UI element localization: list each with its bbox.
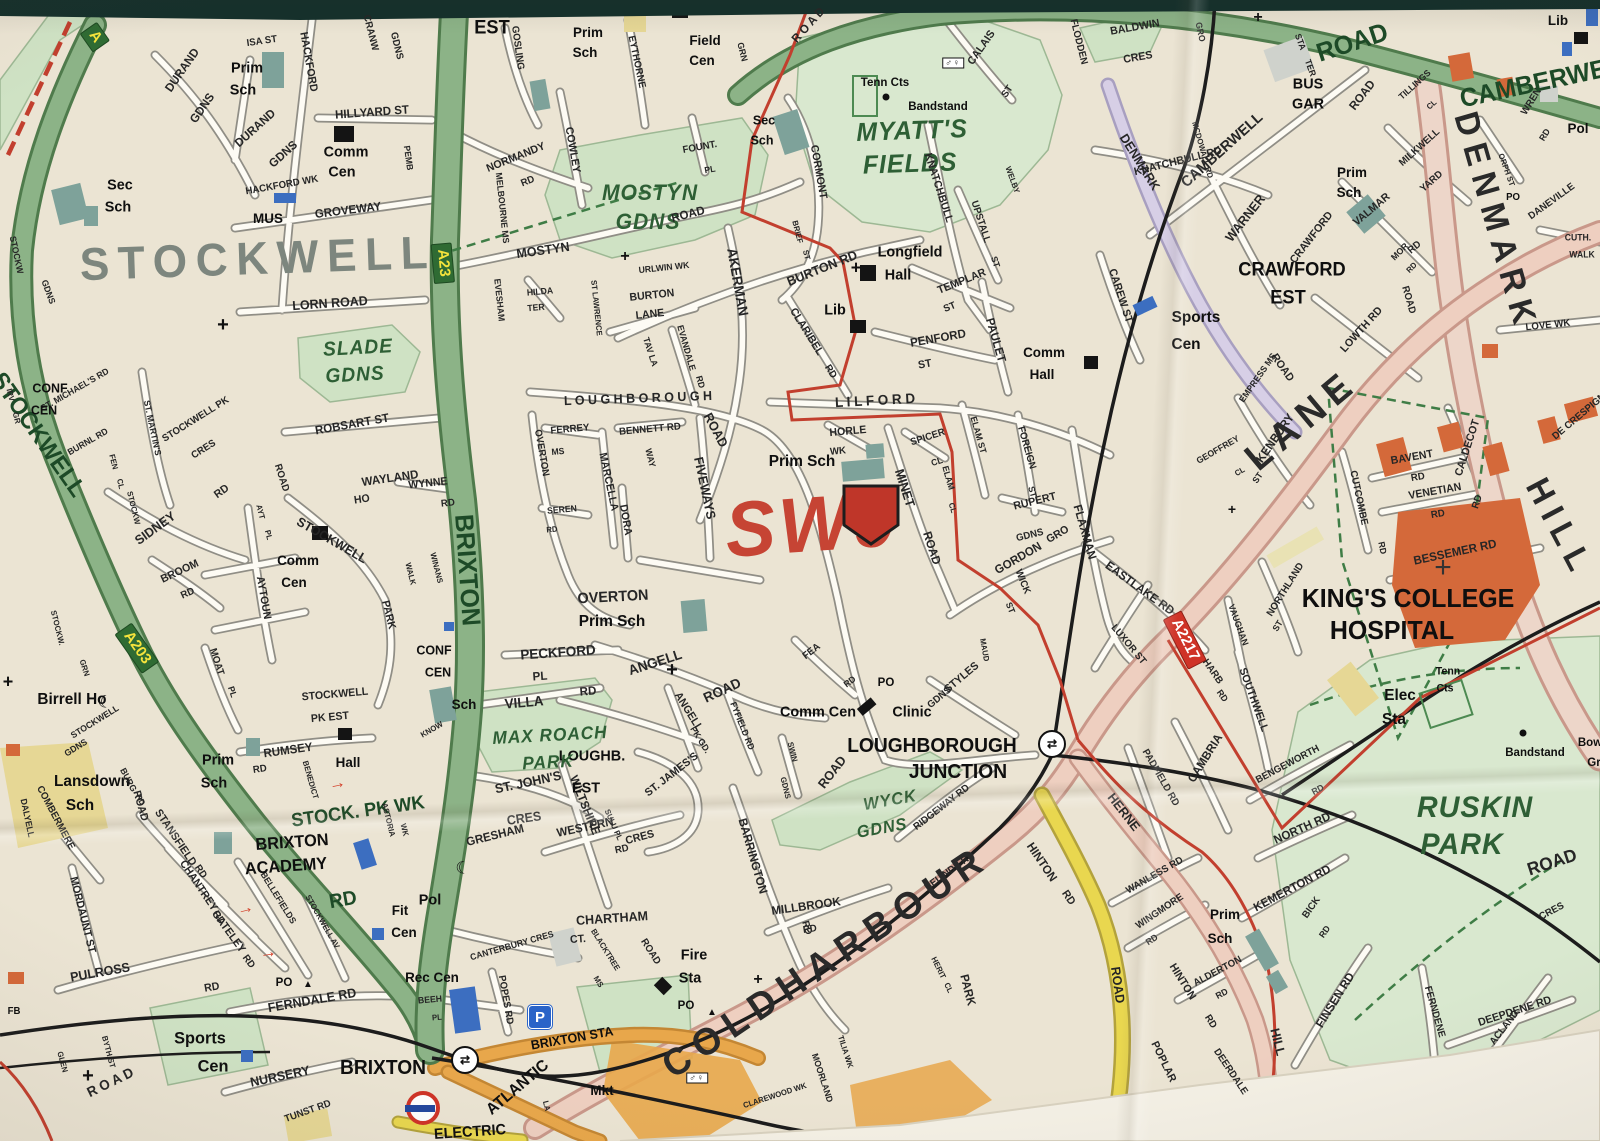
park-label: PARK [1420, 830, 1503, 860]
place-label: Sch [66, 798, 94, 814]
bandstand-dot-icon [1520, 730, 1527, 737]
place-label: Comm Cen [780, 705, 856, 720]
street-label: L I L F O R D [835, 391, 916, 409]
street-label: CL [947, 502, 958, 514]
place-label: Lansdown [54, 774, 130, 790]
street-label: PL [263, 529, 273, 540]
toilets-icon: ♂♀ [942, 58, 964, 69]
place-label: Sec [753, 114, 775, 127]
street-label: ST [989, 255, 1001, 268]
place-label: Sports [174, 1030, 226, 1047]
road-label: RD [328, 888, 359, 913]
church-cross-icon: + [1228, 502, 1236, 518]
park-label: FIELDS [862, 148, 957, 177]
map-photo: ISA STDURANDGDNSDURANDGDNSPrimSchHACKFOR… [0, 0, 1600, 1141]
area-label: STOCKWELL [79, 229, 437, 287]
place-label: Sta [1382, 712, 1406, 728]
park-label: MYATT'S [856, 115, 968, 145]
place-label: Fire [681, 948, 707, 963]
place-label: Fit [392, 903, 408, 917]
place-label: Cen [328, 165, 355, 180]
place-label: Mkt [590, 1083, 613, 1097]
place-label: Longfield [878, 245, 943, 260]
place-label: Hall [885, 268, 911, 283]
place-label: Bandstand [908, 100, 968, 112]
target-house-marker [841, 483, 901, 547]
place-label: ELECTRIC [434, 1122, 507, 1141]
place-label: CEN [425, 666, 451, 679]
street-label: PL [532, 670, 548, 683]
place-label: PO [276, 976, 293, 988]
place-label: Pol [1568, 121, 1589, 135]
street-label: CL [115, 478, 125, 490]
place-label: Clinic [892, 705, 931, 720]
rail-station-icon: ⇄ [1038, 730, 1066, 758]
place-label: Hall [336, 755, 361, 769]
place-label: Rec Cen [405, 970, 459, 984]
place-label: Cen [281, 575, 306, 589]
post-office-icon: ▲ [707, 1008, 717, 1018]
street-label: WALK [1569, 251, 1594, 260]
place-label: Sports [1172, 310, 1221, 326]
park-label: RUSKIN [1417, 793, 1533, 823]
street-label: WK [399, 823, 410, 837]
place-label: Elec [1384, 688, 1416, 704]
place-label: JUNCTION [909, 762, 1007, 782]
church-cross-icon: + [217, 315, 229, 335]
place-label: HOSPITAL [1330, 617, 1454, 643]
place-label: CRAWFORD [1238, 261, 1345, 280]
one-way-arrow-icon: → [258, 942, 277, 961]
church-cross-icon: + [851, 259, 862, 278]
park-label: SLADE [323, 336, 394, 360]
place-label: Sch [230, 83, 256, 98]
church-cross-icon: + [82, 1066, 94, 1086]
place-label: Sch [1208, 931, 1233, 945]
place-label: Sch [452, 697, 477, 711]
place-label: Sch [751, 134, 774, 147]
place-label: LOUGHBOROUGH [847, 736, 1017, 756]
street-label: GR [11, 411, 22, 424]
place-label: Cen [391, 925, 416, 939]
place-label: Pol [419, 893, 441, 908]
place-label: BUS [1293, 77, 1323, 92]
street-label: RD [546, 526, 558, 535]
street-label: MS [551, 447, 565, 457]
park-label: MOSTYN [602, 182, 698, 204]
place-label: GAR [1292, 97, 1324, 112]
place-label: BRIXTON [340, 1058, 426, 1078]
street-label: RD [802, 924, 817, 936]
place-label: EST [1270, 289, 1305, 308]
toilets-icon: ♂♀ [686, 1073, 708, 1084]
street-label: PL [432, 1014, 442, 1023]
place-label: Field [689, 33, 720, 47]
street-label: RD [1376, 541, 1387, 555]
street-label: ST [917, 358, 932, 371]
place-label: Gr [1587, 756, 1600, 768]
place-label: Sch [201, 776, 227, 791]
grid-cross-icon: + [1434, 553, 1452, 583]
place-label: PO [878, 676, 895, 688]
place-label: Lib [824, 303, 846, 318]
place-label: FB [8, 1007, 21, 1017]
place-label: Prim [573, 25, 603, 39]
place-label: Sch [573, 45, 598, 59]
place-label: Prim [1210, 907, 1240, 921]
mosque-crescent-icon: ☾ [97, 694, 112, 711]
place-label: Comm [1023, 345, 1065, 359]
street-label: CT. [570, 934, 587, 946]
road-label: BRIXTON [451, 513, 485, 626]
street-label: HO [353, 493, 370, 506]
street-label: RD [252, 764, 267, 776]
park-label: GDNS [325, 363, 385, 386]
street-label: PL [704, 165, 716, 176]
place-label: Hall [1030, 367, 1055, 381]
street-label: IRV [5, 388, 16, 402]
street-label: OVERTON [577, 588, 649, 607]
place-label: Prim Sch [579, 614, 646, 630]
place-label: Comm [324, 145, 369, 160]
place-label: CONF [416, 644, 451, 657]
park-label: PARK [522, 752, 574, 773]
place-label: Tenn [1436, 667, 1460, 678]
church-cross-icon: + [666, 660, 678, 680]
church-cross-icon: + [3, 673, 14, 692]
place-label: CONF [32, 382, 67, 395]
route-badge-a23: A23 [431, 242, 455, 283]
parking-icon: P [528, 1005, 552, 1029]
street-label: CUTH. [1565, 234, 1591, 243]
place-label: Prim Sch [769, 454, 836, 470]
place-label: PO [678, 999, 695, 1011]
post-office-icon: ▲ [303, 980, 313, 990]
place-label: Cen [198, 1058, 229, 1075]
place-label: Tenn Cts [861, 76, 909, 88]
one-way-arrow-icon: → [327, 773, 347, 793]
church-cross-icon: + [753, 972, 762, 988]
street-label: PL [226, 685, 238, 698]
place-label: Comm [277, 553, 319, 567]
place-label: Bow [1578, 736, 1600, 748]
street-label: LA [541, 1100, 551, 1112]
place-label: Cen [689, 53, 714, 67]
underground-roundel-icon [406, 1091, 440, 1125]
place-label: CEN [31, 404, 57, 417]
street-label: RD [579, 684, 597, 697]
place-label: Sec [107, 178, 133, 193]
street-label: TER [527, 303, 545, 313]
church-cross-icon: + [1253, 10, 1262, 26]
mosque-crescent-icon: ☾ [455, 860, 470, 877]
place-label: EST [572, 781, 600, 796]
bandstand-dot-icon [883, 94, 890, 101]
place-label: Cen [1171, 337, 1200, 353]
rail-station-icon: ⇄ [451, 1046, 479, 1074]
place-label: Sch [105, 200, 131, 215]
street-label: ST [801, 249, 811, 260]
place-label: Lib [1548, 13, 1568, 27]
place-label: Sta [679, 971, 701, 986]
place-label: Prim [1337, 165, 1367, 179]
street-label: VILLA [504, 693, 544, 710]
church-cross-icon: + [620, 249, 629, 265]
one-way-arrow-icon: → [235, 898, 256, 919]
place-label: Prim [231, 61, 263, 76]
place-label: Birrell Ho [37, 692, 106, 708]
place-label: Sch [1337, 185, 1362, 199]
place-label: Bandstand [1505, 746, 1565, 758]
place-label: Prim [202, 753, 234, 768]
place-label: KING'S COLLEGE [1302, 585, 1515, 611]
place-label: MUS [253, 211, 283, 225]
place-label: EST [474, 19, 509, 38]
place-label: Cts [1436, 684, 1453, 695]
street-label: RD [441, 498, 456, 509]
